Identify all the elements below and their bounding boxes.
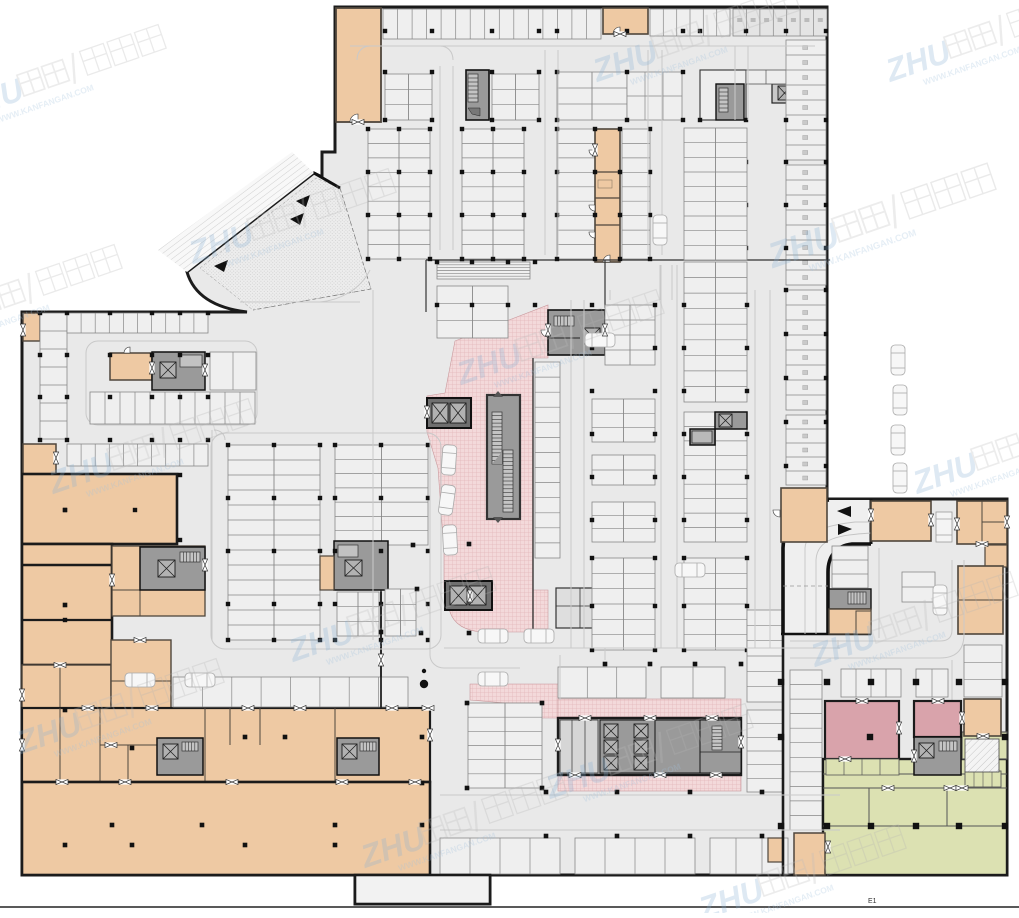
svg-text:E1: E1 [868,898,877,905]
